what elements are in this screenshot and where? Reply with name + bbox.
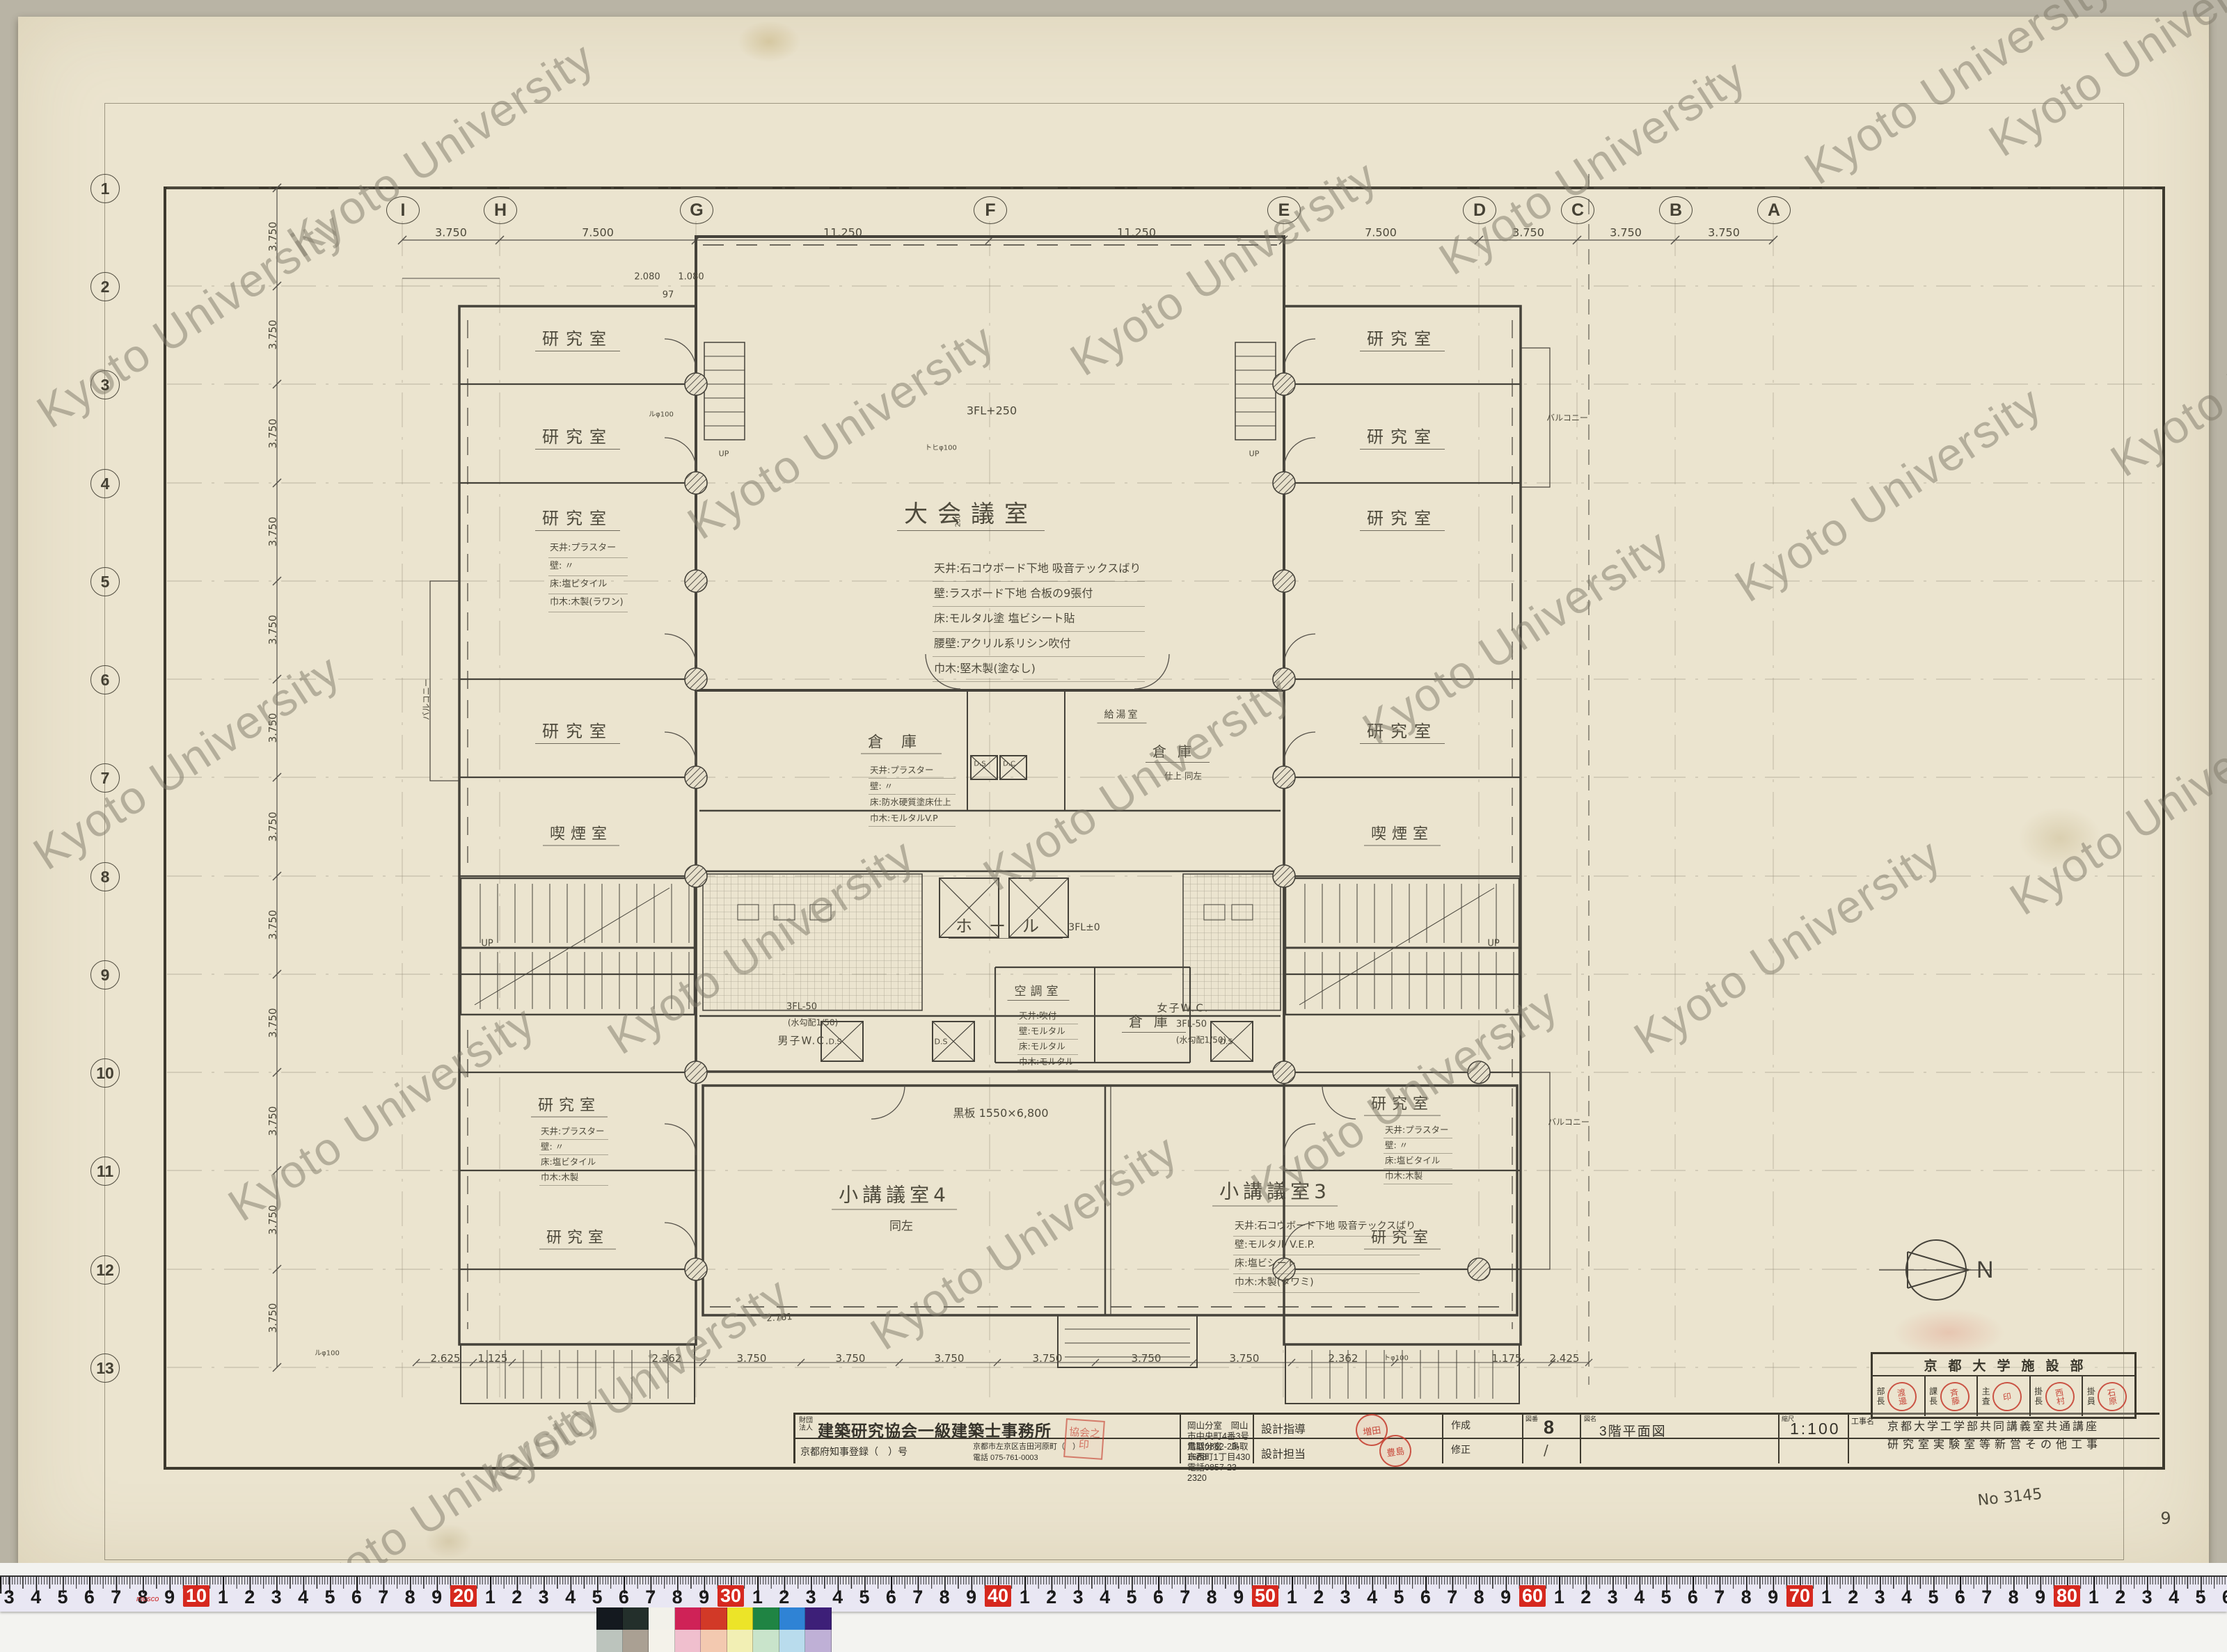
annotation: 3FL±0 xyxy=(1068,922,1100,933)
annotation: D.S xyxy=(1220,1038,1233,1047)
ruler-number: 1 xyxy=(2089,1587,2099,1608)
spec-line: 床:防水硬質塗床仕上 xyxy=(869,795,956,811)
ruler-number: 9 xyxy=(2035,1587,2045,1608)
ruler-number: 70 xyxy=(1786,1585,1813,1607)
kyoto-address: 京都市左京区吉田河原町（ ） xyxy=(973,1440,1080,1452)
registration: 京都府知事登録（ ）号 xyxy=(800,1445,908,1459)
ruler-number: 8 xyxy=(672,1587,683,1608)
sub-dimension-label: 2.080 xyxy=(634,272,660,283)
spec-line: 巾木:木製(ラワン) xyxy=(548,594,628,612)
top-dimension-label: 7.500 xyxy=(1365,226,1397,239)
color-patch xyxy=(779,1630,806,1652)
stamp-cell-label: 主査 xyxy=(1980,1387,1992,1406)
ruler-number: 4 xyxy=(1634,1587,1645,1608)
grid-column-label: H xyxy=(484,196,517,224)
personal-seal-stamp: 西村 xyxy=(2043,1379,2077,1413)
stamp-cell: 掛員石原 xyxy=(2083,1376,2134,1416)
sub-dimension-label: 97 xyxy=(663,290,674,301)
spec-line: 床:塩ビタイル xyxy=(1384,1154,1452,1169)
north-compass: N xyxy=(1879,1240,1994,1300)
grid-column-label: F xyxy=(974,196,1007,224)
finish-spec-note: 天井:石コウボード下地 吸音テックスばり壁:ラスボード下地 合板の9張付床:モル… xyxy=(933,557,1145,682)
left-dimension-label: 3.750 xyxy=(267,419,279,449)
zuban-label: 図番 xyxy=(1525,1414,1538,1423)
ruler-number: 6 xyxy=(1955,1587,1965,1608)
ruler-number: 8 xyxy=(1474,1587,1484,1608)
ruler-number: 6 xyxy=(351,1587,362,1608)
scanned-drawing-page: N IHGFEDCBA123456789101112133.7507.50011… xyxy=(0,0,2227,1652)
koji-line1: 京都大学工学部共同講義室共通講座 xyxy=(1887,1417,2099,1433)
bottom-dimension-label: 3.750 xyxy=(1230,1352,1260,1365)
kyoto-tel: 電話 075-761-0003 xyxy=(973,1452,1038,1463)
sub-dimension-label: 1.080 xyxy=(678,272,704,283)
spec-line: 天井:プラスター xyxy=(869,763,956,779)
color-patch xyxy=(623,1607,649,1630)
color-patch xyxy=(675,1607,702,1630)
room-label: 研究室 xyxy=(535,423,620,450)
ruler-number: 3 xyxy=(1608,1587,1618,1608)
spec-line: 壁:モルタル xyxy=(1017,1024,1078,1040)
ruler-number: 4 xyxy=(1367,1587,1377,1608)
grid-row-label: 1 xyxy=(90,174,120,203)
ruler-number: 1 xyxy=(1287,1587,1297,1608)
stamp-cell-label: 課長 xyxy=(1928,1387,1940,1406)
ruler-number: 7 xyxy=(111,1587,121,1608)
ruler-number: 6 xyxy=(2222,1587,2227,1608)
grid-row-label: 9 xyxy=(90,960,120,990)
annotation: 230 xyxy=(955,514,962,527)
ruler-number: 2 xyxy=(779,1587,789,1608)
annotation: 3FL+250 xyxy=(967,404,1017,418)
ruler-number: 5 xyxy=(592,1587,602,1608)
ruler-number: 7 xyxy=(1180,1587,1190,1608)
annotation: D.S xyxy=(974,761,985,768)
annotation: 3FL-50 xyxy=(786,1002,817,1012)
top-dimension-label: 7.500 xyxy=(582,226,614,239)
ruler-number: 5 xyxy=(859,1587,869,1608)
annotation: (水勾配1/50) xyxy=(788,1017,838,1028)
grid-row-label: 6 xyxy=(90,665,120,694)
ruler-number: 9 xyxy=(966,1587,976,1608)
finish-spec-note: 天井:石コウボード下地 吸音テックスばり壁:モルタル V.E.P.床:塩ビシート… xyxy=(1233,1218,1420,1293)
bottom-dimension-label: 3.750 xyxy=(836,1352,866,1365)
koji-line2: 研究室実験室等新営その他工事 xyxy=(1887,1435,2102,1452)
color-patch xyxy=(805,1630,832,1652)
grid-row-label: 10 xyxy=(90,1058,120,1088)
ruler-number: 5 xyxy=(1661,1587,1671,1608)
ruler-number: 9 xyxy=(1500,1587,1511,1608)
ruler-number: 4 xyxy=(832,1587,843,1608)
ruler-number: 9 xyxy=(1233,1587,1244,1608)
personal-seal-stamp: 石原 xyxy=(2095,1379,2130,1413)
ruler-number: 3 xyxy=(1875,1587,1885,1608)
bottom-dimension-label: 2.625 xyxy=(431,1352,461,1365)
ruler-number: 2 xyxy=(1046,1587,1056,1608)
ruler-number: 5 xyxy=(57,1587,68,1608)
ruler-number: 9 xyxy=(431,1587,442,1608)
bottom-dimension-label: 3.750 xyxy=(1132,1352,1162,1365)
scale-value: 1:100 xyxy=(1790,1420,1841,1438)
ruler-number: 5 xyxy=(1126,1587,1136,1608)
ruler-number: 3 xyxy=(806,1587,816,1608)
color-patch xyxy=(805,1607,832,1630)
bottom-dimension-label: 1.125 xyxy=(478,1352,508,1365)
grid-row-label: 4 xyxy=(90,469,120,498)
ruler-number: 10 xyxy=(183,1585,209,1607)
ruler-number: 4 xyxy=(565,1587,576,1608)
personal-seal-stamp: 渡邊 xyxy=(1885,1379,1919,1413)
zuban-value: 8 xyxy=(1544,1417,1554,1438)
top-dimension-label: 3.750 xyxy=(1708,226,1740,239)
finish-spec-note: 天井:プラスター壁: 〃床:塩ビタイル巾木:木製 xyxy=(539,1125,608,1186)
compass-n-label: N xyxy=(1976,1257,1994,1283)
ruler-number: 9 xyxy=(164,1587,175,1608)
room-label: 男子W.C. xyxy=(777,1033,830,1048)
room-label: 女子W.C. xyxy=(1157,1001,1209,1015)
annotation: バルコニー xyxy=(1546,412,1588,424)
spec-line: 壁: 〃 xyxy=(539,1140,608,1155)
grid-row-label: 5 xyxy=(90,567,120,596)
org-name: 建築研究協会一級建築士事務所 xyxy=(818,1417,1052,1441)
ruler-number: 6 xyxy=(886,1587,896,1608)
ruler-number: 4 xyxy=(1100,1587,1110,1608)
ruler-number: 2 xyxy=(1580,1587,1591,1608)
ruler-number: 5 xyxy=(1928,1587,1938,1608)
design-charge-label: 設計担当 xyxy=(1261,1445,1306,1461)
room-label: 研究室 xyxy=(535,505,620,531)
color-patch xyxy=(675,1630,702,1652)
spec-line: 天井:プラスター xyxy=(539,1125,608,1140)
ruler-number: 3 xyxy=(2142,1587,2153,1608)
bottom-dimension-label: 1.175 xyxy=(1492,1352,1522,1365)
org-type: 財団法人 xyxy=(799,1417,814,1432)
ruler-number: 7 xyxy=(1447,1587,1457,1608)
ruler-number: 3 xyxy=(1073,1587,1084,1608)
ruler-number: 1 xyxy=(1020,1587,1030,1608)
room-label: 喫煙室 xyxy=(543,822,619,846)
stamp-cell: 部長渡邊 xyxy=(1873,1376,1926,1416)
top-dimension-label: 3.750 xyxy=(435,226,467,239)
ruler-number: 7 xyxy=(1714,1587,1725,1608)
facilities-stamp-block: 京都大学施設部 部長渡邊課長斉藤主査印掛長西村掛員石原 xyxy=(1871,1352,2137,1419)
room-label: 研究室 xyxy=(1360,325,1445,351)
spec-line: 壁: 〃 xyxy=(869,779,956,795)
spec-line: 天井:プラスター xyxy=(548,540,628,558)
color-patch xyxy=(596,1607,623,1630)
ruler-number: 6 xyxy=(1420,1587,1431,1608)
grid-row-label: 12 xyxy=(90,1255,120,1285)
annotation: D.S xyxy=(829,1038,842,1047)
left-dimension-label: 3.750 xyxy=(267,1008,279,1038)
ruler-number: 3 xyxy=(4,1587,15,1608)
color-calibration-chart xyxy=(596,1607,832,1652)
spec-line: 壁: 〃 xyxy=(1384,1138,1452,1154)
annotation: トφ100 xyxy=(1384,1352,1409,1363)
ruler-number: 5 xyxy=(2195,1587,2205,1608)
ruler-number: 2 xyxy=(512,1587,522,1608)
ruler-number: 3 xyxy=(1340,1587,1351,1608)
room-label: 喫煙室 xyxy=(1364,822,1441,846)
ruler-number: 1 xyxy=(1554,1587,1564,1608)
bottom-dimension-label: 3.750 xyxy=(737,1352,767,1365)
spec-line: 巾木:木製 xyxy=(539,1170,608,1186)
left-dimension-label: 3.750 xyxy=(267,1106,279,1136)
ruler-number: 40 xyxy=(985,1585,1011,1607)
shusei-label: 修正 xyxy=(1451,1443,1471,1456)
spec-line: 巾木:木製(タワミ) xyxy=(1233,1274,1420,1293)
annotation: バルコニー xyxy=(1548,1116,1590,1128)
design-lead-label: 設計指導 xyxy=(1261,1420,1306,1436)
ruler-number: 4 xyxy=(1901,1587,1912,1608)
finish-spec-note: 天井:プラスター壁: 〃床:防水硬質塗床仕上巾木:モルタルV.P xyxy=(869,763,956,827)
stamp-cell: 主査印 xyxy=(1978,1376,2031,1416)
color-patch xyxy=(701,1630,727,1652)
ruler-number: 3 xyxy=(539,1587,549,1608)
ruler-number: 2 xyxy=(1313,1587,1324,1608)
color-patch xyxy=(727,1630,754,1652)
room-label: 倉庫 xyxy=(861,730,942,754)
left-dimension-label: 3.750 xyxy=(267,615,279,645)
top-dimension-label: 11.250 xyxy=(823,226,862,239)
grid-row-label: 13 xyxy=(90,1353,120,1383)
annotation: ルφ100 xyxy=(649,408,674,419)
ruler-number: 1 xyxy=(218,1587,228,1608)
ruler-number: 7 xyxy=(1981,1587,1992,1608)
ruler-number: 8 xyxy=(405,1587,415,1608)
ruler-number: 2 xyxy=(244,1587,255,1608)
room-label: 小講議室4 xyxy=(832,1180,957,1210)
color-patch xyxy=(779,1607,806,1630)
grid-column-label: A xyxy=(1757,196,1791,224)
annotation: 黒板 1550×6,800 xyxy=(953,1104,1048,1120)
branch-tottori: 鳥取分室 鳥取市西町1丁目430 電話0857-23-2320 xyxy=(1187,1442,1251,1484)
annotation: UP xyxy=(1487,939,1499,949)
ruler-number: 6 xyxy=(84,1587,95,1608)
left-dimension-label: 3.750 xyxy=(267,320,279,350)
spec-line: 腰壁:アクリル系リシン吹付 xyxy=(933,632,1145,657)
ruler-number: 8 xyxy=(1207,1587,1217,1608)
ruler-number: 8 xyxy=(2008,1587,2019,1608)
ruler-number: 3 xyxy=(271,1587,282,1608)
finish-spec-note: 天井:プラスター壁: 〃床:塩ビタイル巾木:木製(ラワン) xyxy=(548,540,628,612)
ruler-number: 4 xyxy=(2169,1587,2179,1608)
bottom-dimension-label: 2.362 xyxy=(1329,1352,1358,1365)
spec-line: 壁: 〃 xyxy=(548,558,628,576)
grid-column-label: G xyxy=(680,196,713,224)
stamp-cell-label: 掛員 xyxy=(2085,1387,2097,1406)
ruler-number: 1 xyxy=(485,1587,496,1608)
ruler-number: 7 xyxy=(378,1587,388,1608)
spec-line: 床:モルタル xyxy=(1017,1040,1078,1055)
annotation: UP xyxy=(1249,450,1260,459)
sakusei-label: 作成 xyxy=(1451,1418,1471,1432)
organization-seal: 協会之印 xyxy=(1063,1418,1105,1460)
personal-seal-stamp: 斉藤 xyxy=(1937,1379,1972,1413)
spec-line: 天井:石コウボード下地 吸音テックスばり xyxy=(1233,1218,1420,1237)
stamp-cell-label: 掛長 xyxy=(2033,1387,2045,1406)
zuban-note: / xyxy=(1544,1442,1548,1459)
ruler-number: 7 xyxy=(645,1587,656,1608)
ruler-number: 80 xyxy=(2054,1585,2080,1607)
spec-line: 天井:石コウボード下地 吸音テックスばり xyxy=(933,557,1145,582)
room-label: 研究室 xyxy=(535,325,620,351)
annotation: バルコニー xyxy=(420,678,432,720)
color-patch xyxy=(649,1630,675,1652)
zumei-label: 図名 xyxy=(1584,1414,1596,1423)
color-patch xyxy=(701,1607,727,1630)
room-label: ホール xyxy=(949,912,1063,939)
left-dimension-label: 3.750 xyxy=(267,812,279,842)
grid-row-label: 8 xyxy=(90,862,120,891)
spec-line: 巾木:堅木製(塗なし) xyxy=(933,657,1145,682)
color-patch xyxy=(623,1630,649,1652)
spec-line: 巾木:モルタルV.P xyxy=(869,811,956,827)
bottom-dimension-label: 2.425 xyxy=(1550,1352,1580,1365)
ruler-number: 8 xyxy=(1741,1587,1752,1608)
spec-line: 壁:ラスボード下地 合板の9張付 xyxy=(933,582,1145,607)
spec-line: 天井:吹付 xyxy=(1017,1009,1078,1024)
ruler-number: 20 xyxy=(450,1585,477,1607)
ruler-number: 8 xyxy=(940,1587,950,1608)
room-label: 研究室 xyxy=(539,1225,616,1250)
annotation: UP xyxy=(719,450,729,459)
room-label: 研究室 xyxy=(1360,423,1445,450)
room-label: 大会議室 xyxy=(897,495,1045,531)
ruler-number: 4 xyxy=(31,1587,41,1608)
ruler-number: 60 xyxy=(1519,1585,1546,1607)
top-dimension-label: 3.750 xyxy=(1610,226,1642,239)
annotation: UP xyxy=(481,939,493,949)
bottom-dimension-label: 3.750 xyxy=(1033,1352,1063,1365)
room-label: 空調室 xyxy=(1008,981,1070,1001)
spec-line: 床:モルタル塗 塩ビシート貼 xyxy=(933,607,1145,632)
spec-line: 床:塩ビタイル xyxy=(548,576,628,594)
color-patch xyxy=(649,1607,675,1630)
ruler-number: 6 xyxy=(1153,1587,1164,1608)
top-dimension-label: 11.250 xyxy=(1117,226,1156,239)
annotation: トヒφ100 xyxy=(925,442,957,452)
stamp-cell: 課長斉藤 xyxy=(1926,1376,1979,1416)
ruler-number: 9 xyxy=(699,1587,709,1608)
measuring-ruler: 3456789101234567892012345678930123456789… xyxy=(0,1575,2227,1612)
ruler-number: 1 xyxy=(1821,1587,1832,1608)
left-dimension-label: 3.750 xyxy=(267,1303,279,1333)
annotation: ルφ100 xyxy=(315,1347,340,1358)
grid-row-label: 11 xyxy=(90,1157,120,1186)
left-dimension-label: 3.750 xyxy=(267,910,279,940)
annotation: 3FL-50 xyxy=(1176,1019,1207,1030)
ruler-brand: musco xyxy=(136,1595,159,1603)
stamp-cell: 掛長西村 xyxy=(2031,1376,2084,1416)
color-patch xyxy=(753,1607,779,1630)
left-dimension-label: 3.750 xyxy=(267,517,279,547)
stamp-block-title: 京都大学施設部 xyxy=(1873,1354,2134,1376)
bottom-dimension-label: 3.750 xyxy=(935,1352,965,1365)
ruler-number: 5 xyxy=(324,1587,335,1608)
grid-column-label: B xyxy=(1659,196,1693,224)
annotation: 9 xyxy=(2160,1509,2171,1528)
personal-seal-stamp: 印 xyxy=(1990,1379,2024,1413)
grid-row-label: 2 xyxy=(90,272,120,301)
color-patch xyxy=(753,1630,779,1652)
ruler-number: 2 xyxy=(1848,1587,1858,1608)
ruler-number: 7 xyxy=(912,1587,923,1608)
spec-line: 壁:モルタル V.E.P. xyxy=(1233,1237,1420,1255)
annotation: D.C xyxy=(1003,761,1015,768)
spec-line: 巾木:木製 xyxy=(1384,1169,1452,1184)
annotation: D.S xyxy=(935,1038,948,1047)
spec-line: 床:塩ビシート xyxy=(1233,1255,1420,1274)
ruler-number: 9 xyxy=(1768,1587,1778,1608)
ruler-number: 6 xyxy=(619,1587,629,1608)
room-label: 研究室 xyxy=(535,717,620,744)
color-patch xyxy=(596,1630,623,1652)
annotation: (水勾配1/50) xyxy=(1176,1034,1226,1046)
color-patch xyxy=(727,1607,754,1630)
ruler-number: 5 xyxy=(1393,1587,1404,1608)
room-label: 給湯室 xyxy=(1097,708,1147,724)
spec-line: 床:塩ビタイル xyxy=(539,1155,608,1170)
room-label: 研究室 xyxy=(531,1093,608,1118)
annotation: 同左 xyxy=(889,1216,913,1234)
ruler-number: 4 xyxy=(298,1587,308,1608)
finish-spec-note: 天井:吹付壁:モルタル床:モルタル巾木:モルタル xyxy=(1017,1009,1078,1070)
ruler-number: 30 xyxy=(718,1585,744,1607)
stamp-cell-label: 部長 xyxy=(1875,1387,1887,1406)
zumei-value: 3階平面図 xyxy=(1599,1421,1667,1440)
ruler-number: 1 xyxy=(752,1587,763,1608)
ruler-number: 2 xyxy=(2115,1587,2125,1608)
spec-line: 巾木:モルタル xyxy=(1017,1055,1078,1070)
ruler-number: 50 xyxy=(1252,1585,1278,1607)
room-label: 研究室 xyxy=(1360,505,1445,531)
ruler-number: 6 xyxy=(1688,1587,1698,1608)
